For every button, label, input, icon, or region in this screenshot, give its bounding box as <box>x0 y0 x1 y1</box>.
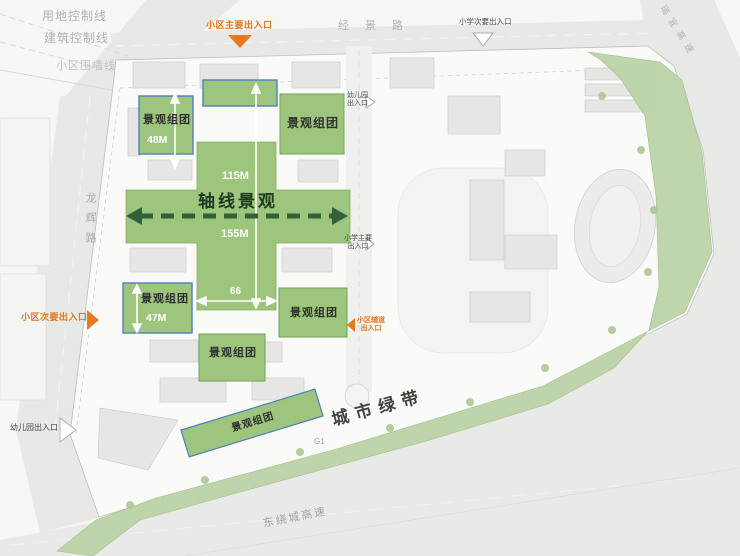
cluster-label-bottom-center: 景观组团 <box>209 347 257 359</box>
entrance-kindergarten-east-line1: 幼儿园 <box>347 92 368 99</box>
cluster-box-top <box>203 80 277 106</box>
label-land-control-line: 用地控制线 <box>42 10 107 23</box>
entrance-school-main-label: 小学主要 出入口 <box>344 235 372 251</box>
plan-drawing <box>0 0 740 556</box>
site-plan: 用地控制线 建筑控制线 小区围墙线 经景路 瑞宜高速 龙辉路 东绕城高速 G1 … <box>0 0 740 556</box>
cluster-dim-upper-left: 48M <box>147 135 167 147</box>
cluster-label-upper-left: 景观组团 <box>143 114 191 126</box>
cluster-label-lower-left: 景观组团 <box>141 293 189 305</box>
entrance-community-service-line2: 出入口 <box>361 325 382 332</box>
entrance-community-main-label: 小区主要出入口 <box>206 21 273 31</box>
entrance-school-main-line1: 小学主要 <box>344 235 372 242</box>
axis-dim-upper: 115M <box>222 170 249 182</box>
cluster-dim-lower-left: 47M <box>146 313 166 325</box>
axis-title: 轴线景观 <box>198 193 278 212</box>
west-parcels <box>0 118 50 400</box>
axis-dim-width: 66 <box>230 286 241 297</box>
entrance-kindergarten-east-label: 幼儿园 出入口 <box>347 92 368 108</box>
entrance-community-service-line1: 小区辅道 <box>357 317 385 324</box>
cluster-label-upper-right: 景观组团 <box>287 117 339 130</box>
entrance-school-secondary-label: 小学次要出入口 <box>459 18 512 26</box>
entrance-community-secondary-label: 小区次要出入口 <box>21 313 88 323</box>
cluster-label-middle-right: 景观组团 <box>290 307 338 319</box>
label-building-control-line: 建筑控制线 <box>44 32 109 45</box>
road-marker-g1: G1 <box>314 438 325 447</box>
axis-dim-lower: 155M <box>221 228 249 240</box>
entrance-school-main-line2: 出入口 <box>348 243 369 250</box>
road-name-west: 龙辉路 <box>84 192 96 252</box>
entrance-kindergarten-east-line2: 出入口 <box>347 100 368 107</box>
road-name-north: 经景路 <box>338 20 419 32</box>
entrance-community-service-label: 小区辅道 出入口 <box>357 317 385 333</box>
label-community-wall-line: 小区围墙线 <box>56 60 116 72</box>
entrance-kindergarten-west-label: 幼儿园出入口 <box>10 424 58 433</box>
